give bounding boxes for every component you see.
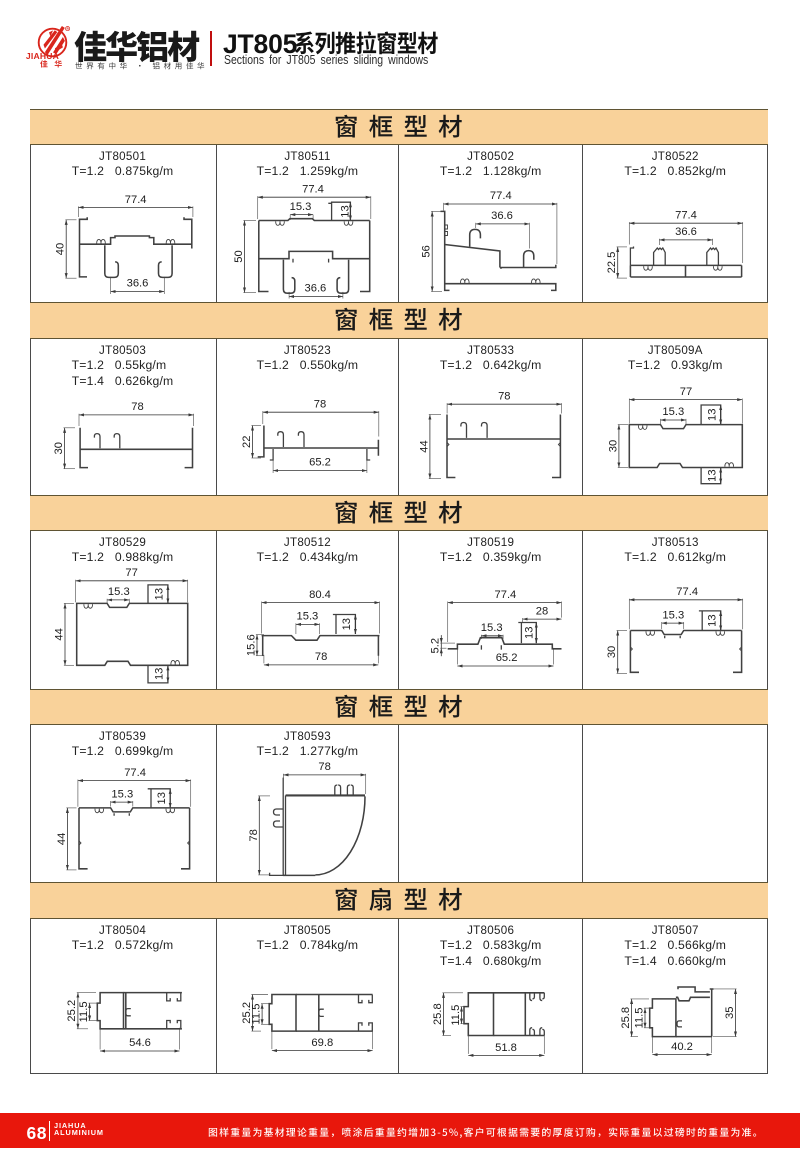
svg-text:69.8: 69.8 <box>311 1036 333 1048</box>
svg-text:25.8: 25.8 <box>620 1006 632 1028</box>
svg-text:11.5: 11.5 <box>450 1004 462 1025</box>
svg-text:15.3: 15.3 <box>107 586 129 598</box>
svg-text:15.3: 15.3 <box>111 788 133 800</box>
svg-text:78: 78 <box>313 398 325 410</box>
svg-text:11.5: 11.5 <box>250 1003 262 1024</box>
svg-text:77.4: 77.4 <box>302 183 324 195</box>
svg-text:36.6: 36.6 <box>675 226 697 238</box>
svg-text:65.2: 65.2 <box>496 652 518 664</box>
svg-text:13: 13 <box>341 617 353 629</box>
svg-text:77.4: 77.4 <box>676 586 698 598</box>
svg-text:78: 78 <box>131 401 143 413</box>
svg-text:40.2: 40.2 <box>671 1041 693 1053</box>
svg-text:13: 13 <box>155 792 167 804</box>
svg-text:80.4: 80.4 <box>309 588 331 600</box>
svg-text:13: 13 <box>153 587 165 599</box>
svg-text:30: 30 <box>607 439 619 451</box>
svg-text:54.6: 54.6 <box>129 1037 151 1049</box>
svg-text:36.6: 36.6 <box>126 277 148 289</box>
svg-text:65.2: 65.2 <box>309 456 331 468</box>
svg-text:13: 13 <box>707 469 719 481</box>
svg-text:25.8: 25.8 <box>432 1003 444 1025</box>
svg-text:30: 30 <box>53 442 65 454</box>
svg-text:78: 78 <box>498 390 510 402</box>
svg-text:40: 40 <box>54 242 66 254</box>
svg-text:15.3: 15.3 <box>296 610 318 622</box>
svg-text:78: 78 <box>314 651 326 663</box>
svg-text:22.5: 22.5 <box>606 251 618 273</box>
svg-text:77: 77 <box>125 567 137 579</box>
svg-text:15.3: 15.3 <box>662 406 684 418</box>
svg-text:78: 78 <box>247 829 259 841</box>
svg-text:77.4: 77.4 <box>675 209 697 221</box>
svg-text:44: 44 <box>419 440 431 452</box>
svg-text:36.6: 36.6 <box>491 210 513 222</box>
svg-text:13: 13 <box>707 614 719 626</box>
svg-text:36.6: 36.6 <box>304 282 326 294</box>
svg-text:13: 13 <box>153 667 165 679</box>
svg-text:77.4: 77.4 <box>124 193 146 205</box>
svg-text:51.8: 51.8 <box>495 1041 517 1053</box>
svg-text:56: 56 <box>421 245 433 257</box>
svg-text:77.4: 77.4 <box>495 588 517 600</box>
svg-text:78: 78 <box>318 761 330 773</box>
svg-text:50: 50 <box>233 250 245 262</box>
svg-text:30: 30 <box>606 645 618 657</box>
svg-text:44: 44 <box>55 832 67 844</box>
svg-text:13: 13 <box>524 626 536 638</box>
svg-text:44: 44 <box>53 628 65 640</box>
svg-text:11.5: 11.5 <box>633 1007 645 1028</box>
svg-text:22: 22 <box>241 435 253 447</box>
svg-text:15.3: 15.3 <box>289 200 311 212</box>
svg-text:15.6: 15.6 <box>245 634 257 656</box>
svg-text:13: 13 <box>339 205 351 217</box>
svg-text:77.4: 77.4 <box>490 190 512 202</box>
svg-text:28: 28 <box>536 605 548 617</box>
svg-text:11.5: 11.5 <box>78 1001 90 1022</box>
svg-text:35: 35 <box>724 1006 736 1018</box>
svg-text:15.3: 15.3 <box>481 622 503 634</box>
svg-text:5.2: 5.2 <box>430 637 442 653</box>
svg-text:25.2: 25.2 <box>66 999 78 1021</box>
svg-text:77: 77 <box>680 385 692 397</box>
svg-text:13: 13 <box>707 408 719 420</box>
svg-text:15.3: 15.3 <box>662 609 684 621</box>
svg-text:77.4: 77.4 <box>124 766 146 778</box>
